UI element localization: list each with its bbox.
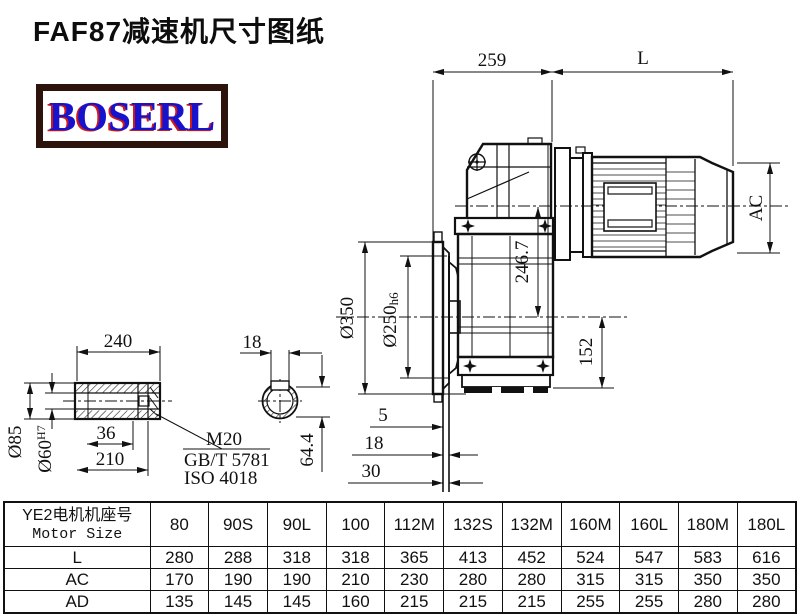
row-label: AD [4, 591, 150, 614]
table-cell: 365 [385, 547, 444, 569]
table-row-L: L 280 288 318 318 365 413 452 524 547 58… [4, 547, 796, 569]
gearbox-foot [464, 387, 548, 393]
table-cell: 145 [209, 591, 268, 614]
table-cell: 318 [267, 547, 326, 569]
table-col-header: 180M [678, 502, 737, 547]
dim-key-depth: 64.4 [297, 433, 318, 467]
table-cell: 350 [678, 569, 737, 591]
table-cell: 160 [326, 591, 385, 614]
dim-5: 5 [378, 405, 388, 426]
table-cell: 215 [444, 591, 503, 614]
table-cell: 280 [678, 591, 737, 614]
table-cell: 583 [678, 547, 737, 569]
table-cell: 616 [737, 547, 796, 569]
dim-L: L [637, 48, 649, 69]
table-cell: 280 [737, 591, 796, 614]
motor-size-label-cn: YE2电机机座号 [5, 506, 150, 526]
dim-spigot: Ø250h6 [380, 292, 401, 348]
table-col-header: 160L [620, 502, 679, 547]
dimension-labels: 259 L AC 246.7 152 Ø350 Ø250h6 5 18 30 2… [5, 48, 767, 489]
table-col-header: 132M [502, 502, 561, 547]
row-label: L [4, 547, 150, 569]
dim-flange-od: Ø350 [337, 297, 358, 339]
table-cell: 413 [444, 547, 503, 569]
table-cell: 255 [561, 591, 620, 614]
table-cell: 318 [326, 547, 385, 569]
table-cell: 170 [150, 569, 209, 591]
table-cell: 255 [620, 591, 679, 614]
extension-lines [24, 80, 780, 492]
table-cell: 315 [620, 569, 679, 591]
table-header-row: YE2电机机座号 Motor Size 80 90S 90L 100 112M … [4, 502, 796, 547]
table-col-header: 132S [444, 502, 503, 547]
table-row-AD: AD 135 145 145 160 215 215 215 255 255 2… [4, 591, 796, 614]
dim-bore: Ø60H7 [34, 425, 56, 472]
table-cell: 452 [502, 547, 561, 569]
table-col-header: 112M [385, 502, 444, 547]
table-col-header: 90L [267, 502, 326, 547]
table-cell: 280 [150, 547, 209, 569]
motor-nameplate [604, 183, 656, 231]
table-cell: 547 [620, 547, 679, 569]
dim-259: 259 [478, 50, 507, 71]
dimension-lines [30, 72, 770, 483]
table-cell: 215 [502, 591, 561, 614]
table-cell: 190 [267, 569, 326, 591]
table-col-header: 90S [209, 502, 268, 547]
dim-shaft-od: Ø85 [5, 426, 26, 459]
table-cell: 135 [150, 591, 209, 614]
table-cell: 280 [444, 569, 503, 591]
centerlines [63, 206, 788, 423]
table-header-motor-size: YE2电机机座号 Motor Size [4, 502, 150, 547]
row-label: AC [4, 569, 150, 591]
shaft-cross-section [263, 381, 298, 419]
motor-size-label-en: Motor Size [5, 526, 150, 544]
table-cell: 350 [737, 569, 796, 591]
dim-18: 18 [365, 433, 384, 454]
table-col-header: 160M [561, 502, 620, 547]
dim-30: 30 [362, 461, 381, 482]
dim-key-width: 18 [243, 332, 262, 353]
table-cell: 524 [561, 547, 620, 569]
label-bolt: M20 [206, 429, 242, 450]
table-col-header: 180L [737, 502, 796, 547]
dim-152: 152 [576, 338, 597, 367]
table-col-header: 80 [150, 502, 209, 547]
motor-size-table: YE2电机机座号 Motor Size 80 90S 90L 100 112M … [3, 501, 797, 614]
dim-210: 210 [96, 449, 125, 470]
table-cell: 288 [209, 547, 268, 569]
table-col-header: 100 [326, 502, 385, 547]
table-cell: 145 [267, 591, 326, 614]
position-mark-icon [468, 153, 486, 171]
dim-36: 36 [97, 423, 116, 444]
table-row-AC: AC 170 190 190 210 230 280 280 315 315 3… [4, 569, 796, 591]
dim-AC: AC [746, 195, 767, 221]
drawing-page: FAF87减速机尺寸图纸 BOSERL [0, 0, 800, 614]
dim-240: 240 [104, 331, 133, 352]
dim-246-7: 246.7 [512, 241, 533, 284]
table-cell: 315 [561, 569, 620, 591]
gearbox-lower-housing [458, 234, 553, 357]
table-cell: 230 [385, 569, 444, 591]
table-cell: 280 [502, 569, 561, 591]
table-cell: 215 [385, 591, 444, 614]
label-std-iso: ISO 4018 [184, 468, 257, 489]
table-cell: 190 [209, 569, 268, 591]
table-cell: 210 [326, 569, 385, 591]
